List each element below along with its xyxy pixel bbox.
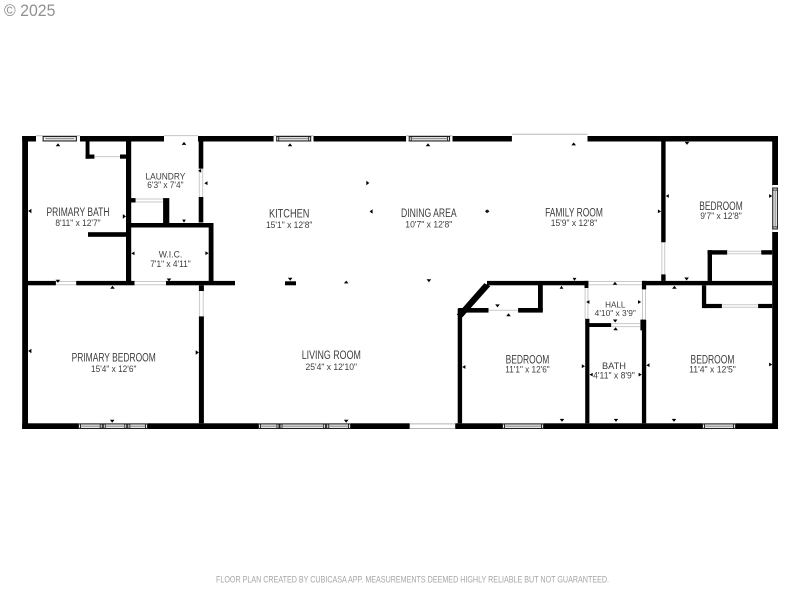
svg-text:W.I.C.: W.I.C. [159,249,183,259]
svg-text:10'7" x 12'8": 10'7" x 12'8" [405,219,452,230]
svg-text:FLOOR PLAN CREATED BY CUBICASA: FLOOR PLAN CREATED BY CUBICASA APP. MEAS… [216,575,609,585]
svg-text:4'10" x 3'9": 4'10" x 3'9" [595,308,636,318]
svg-text:6'3" x 7'4": 6'3" x 7'4" [147,180,183,190]
svg-text:© 2025: © 2025 [4,2,56,20]
svg-text:11'4" x 12'5": 11'4" x 12'5" [689,363,736,374]
svg-text:9'7" x 12'8": 9'7" x 12'8" [700,210,742,221]
svg-text:15'1" x 12'8": 15'1" x 12'8" [266,219,313,230]
svg-text:7'1" x 4'11": 7'1" x 4'11" [150,259,191,269]
svg-text:15'4" x 12'6": 15'4" x 12'6" [91,363,136,374]
svg-text:8'11" x 12'7": 8'11" x 12'7" [55,217,100,228]
svg-text:4'11" x 8'9": 4'11" x 8'9" [593,370,635,380]
svg-text:15'9" x 12'8": 15'9" x 12'8" [551,217,598,228]
svg-text:25'4" x 12'10": 25'4" x 12'10" [306,361,358,372]
svg-text:11'1" x 12'6": 11'1" x 12'6" [505,364,549,375]
